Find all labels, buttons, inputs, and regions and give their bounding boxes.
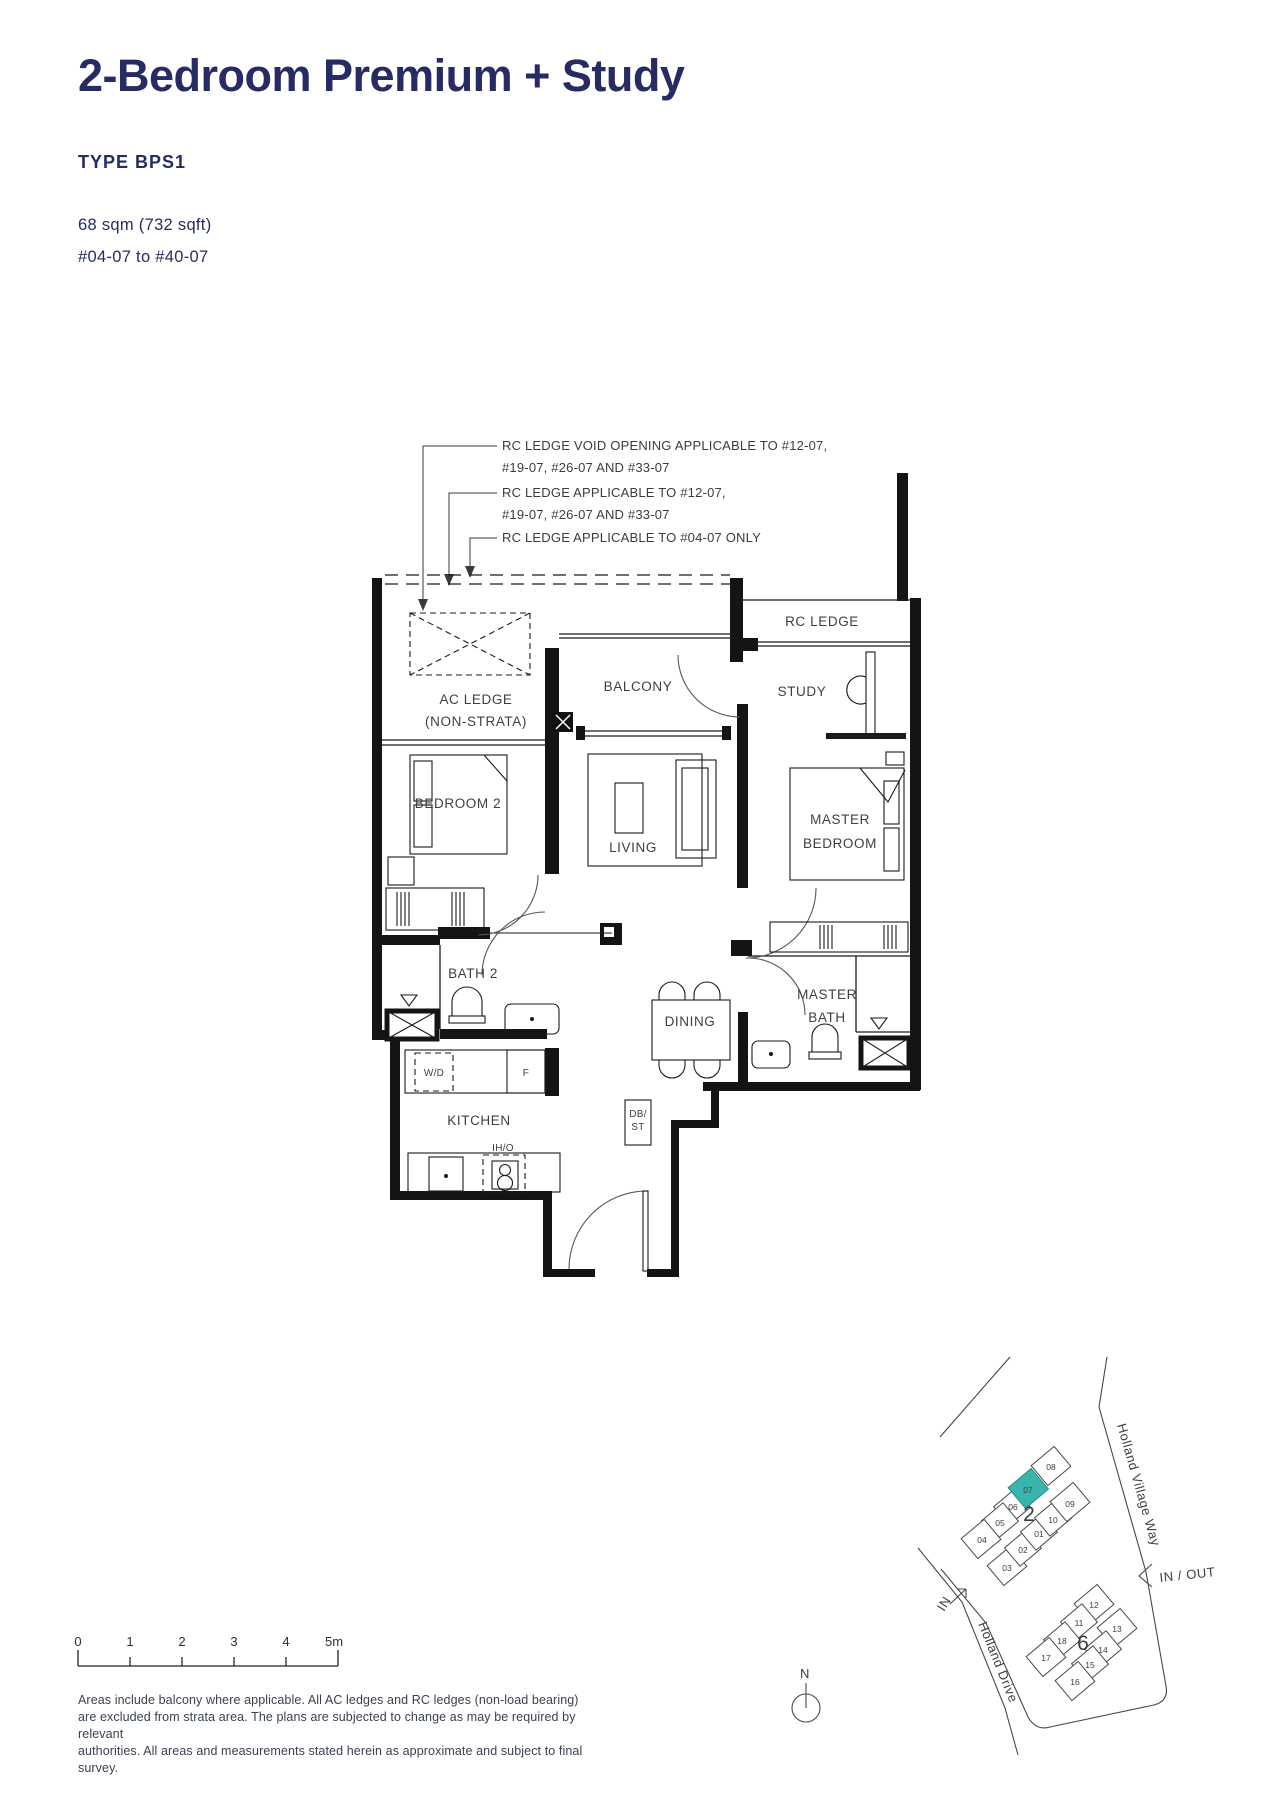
dining-set <box>652 982 730 1078</box>
building-cluster-2: 08 07 06 05 04 03 02 01 10 09 2 <box>961 1446 1090 1585</box>
label-kitchen: KITCHEN <box>447 1113 510 1128</box>
shower-symbol <box>401 995 417 1006</box>
svg-text:#19-07, #26-07 AND #33-07: #19-07, #26-07 AND #33-07 <box>502 460 670 475</box>
floor-plan-drawing: RC LEDGE VOID OPENING APPLICABLE TO #12-… <box>0 0 1284 1820</box>
svg-text:05: 05 <box>995 1518 1005 1528</box>
svg-text:11: 11 <box>1075 1618 1084 1628</box>
svg-text:5m: 5m <box>325 1634 343 1649</box>
disclaimer-line3: authorities. All areas and measurements … <box>78 1744 582 1775</box>
annotation-rc-void: RC LEDGE VOID OPENING APPLICABLE TO #12-… <box>502 438 827 453</box>
svg-text:0: 0 <box>74 1634 81 1649</box>
block-6-label: 6 <box>1077 1632 1089 1655</box>
annotation-rc-ledge-12: RC LEDGE APPLICABLE TO #12-07, <box>502 485 726 500</box>
svg-text:ST: ST <box>631 1122 644 1133</box>
label-iho: IH/O <box>492 1143 514 1154</box>
block-2-label: 2 <box>1023 1503 1035 1526</box>
room-labels: AC LEDGE (NON-STRATA) BALCONY RC LEDGE S… <box>415 614 877 1154</box>
svg-text:(NON-STRATA): (NON-STRATA) <box>425 714 527 729</box>
label-balcony: BALCONY <box>604 679 673 694</box>
disclaimer: Areas include balcony where applicable. … <box>78 1692 608 1777</box>
furniture <box>386 652 909 1193</box>
label-dining: DINING <box>665 1014 716 1029</box>
svg-text:17: 17 <box>1041 1653 1051 1663</box>
building-cluster-6: 12 11 13 18 14 17 15 16 6 <box>1026 1584 1137 1700</box>
wardrobe2 <box>386 888 484 930</box>
unit-07-label: 07 <box>1023 1485 1033 1495</box>
label-dbst: DB/ <box>629 1109 647 1120</box>
label-study: STUDY <box>778 684 827 699</box>
north-compass-icon: N <box>792 1666 820 1722</box>
floorplan-page: 2-Bedroom Premium + Study TYPE BPS1 68 s… <box>0 0 1284 1820</box>
toilet <box>812 1024 838 1052</box>
label-in: IN <box>934 1594 954 1614</box>
label-fridge: F <box>523 1068 529 1079</box>
svg-text:1: 1 <box>126 1634 133 1649</box>
label-in-out: IN / OUT <box>1159 1564 1216 1585</box>
annotation-rc-ledge-04: RC LEDGE APPLICABLE TO #04-07 ONLY <box>502 530 761 545</box>
svg-text:04: 04 <box>977 1535 987 1545</box>
label-bath2: BATH 2 <box>448 966 498 981</box>
label-master-bedroom: MASTER <box>810 812 870 827</box>
label-rc-ledge: RC LEDGE <box>785 614 859 629</box>
study-furniture <box>826 652 906 739</box>
svg-text:14: 14 <box>1098 1645 1108 1655</box>
svg-text:09: 09 <box>1065 1499 1075 1509</box>
svg-text:3: 3 <box>230 1634 237 1649</box>
svg-text:BATH: BATH <box>808 1010 845 1025</box>
label-bedroom2: BEDROOM 2 <box>415 796 501 811</box>
annotation-leaders <box>418 446 497 611</box>
svg-text:16: 16 <box>1070 1677 1080 1687</box>
label-master-bath: MASTER <box>797 987 857 1002</box>
entry-door-leaf <box>643 1191 648 1271</box>
bed2 <box>388 755 507 885</box>
label-ac-ledge: AC LEDGE <box>439 692 512 707</box>
shower-symbol <box>871 1018 887 1029</box>
svg-text:BEDROOM: BEDROOM <box>803 836 877 851</box>
annotation-texts: RC LEDGE VOID OPENING APPLICABLE TO #12-… <box>502 438 827 545</box>
svg-text:06: 06 <box>1008 1502 1018 1512</box>
north-label: N <box>800 1666 810 1681</box>
door-arcs <box>478 655 816 1271</box>
svg-text:08: 08 <box>1046 1462 1056 1472</box>
svg-text:10: 10 <box>1048 1515 1058 1525</box>
svg-text:2: 2 <box>178 1634 185 1649</box>
walls <box>372 473 921 1277</box>
svg-text:01: 01 <box>1034 1529 1044 1539</box>
master-wardrobe <box>770 922 908 952</box>
svg-text:13: 13 <box>1112 1624 1122 1634</box>
site-map: 08 07 06 05 04 03 02 01 10 09 2 <box>792 1357 1216 1755</box>
toilet <box>452 987 482 1016</box>
disclaimer-line2: are excluded from strata area. The plans… <box>78 1710 576 1741</box>
disclaimer-line1: Areas include balcony where applicable. … <box>78 1693 579 1707</box>
label-wd: W/D <box>424 1068 444 1079</box>
svg-text:03: 03 <box>1002 1563 1012 1573</box>
label-living: LIVING <box>609 840 657 855</box>
scale-bar: 0 1 2 3 4 5m <box>74 1634 343 1666</box>
master-bath-fixtures <box>752 1018 909 1068</box>
svg-text:#19-07, #26-07 AND #33-07: #19-07, #26-07 AND #33-07 <box>502 507 670 522</box>
svg-text:02: 02 <box>1018 1545 1028 1555</box>
in-out-arrow-icon <box>1139 1564 1152 1587</box>
svg-text:12: 12 <box>1089 1600 1099 1610</box>
ac-unit-box <box>553 712 573 732</box>
svg-text:15: 15 <box>1085 1660 1095 1670</box>
svg-text:18: 18 <box>1057 1636 1067 1646</box>
svg-text:4: 4 <box>282 1634 289 1649</box>
